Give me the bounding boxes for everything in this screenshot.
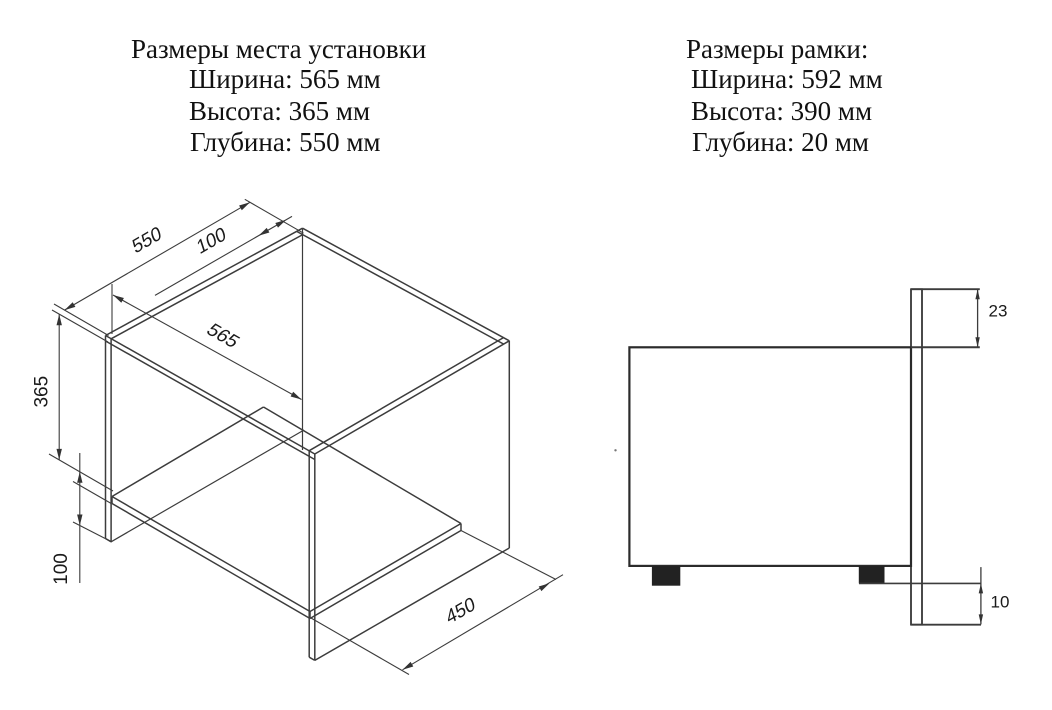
- svg-text:100: 100: [195, 223, 229, 259]
- svg-text:100: 100: [51, 553, 72, 585]
- svg-text:550: 550: [130, 223, 164, 259]
- svg-text:450: 450: [444, 593, 478, 629]
- svg-text:10: 10: [991, 593, 1010, 612]
- svg-text:23: 23: [989, 302, 1008, 321]
- svg-text:365: 365: [32, 376, 53, 408]
